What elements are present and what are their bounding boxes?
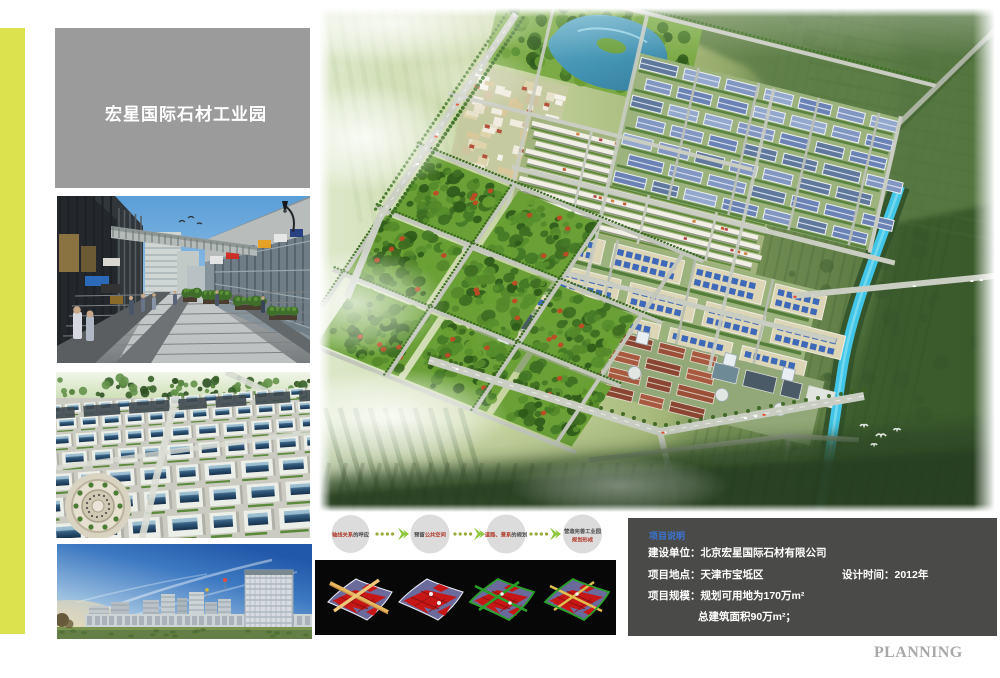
svg-text:规划形成: 规划形成 [572,536,594,544]
svg-text:轴线关系的呼应: 轴线关系的呼应 [332,531,370,539]
svg-text:道路、景系的规划: 道路、景系的规划 [485,531,527,539]
svg-text:预留公共空间: 预留公共空间 [414,531,446,539]
svg-text:营造完善工业园: 营造完善工业园 [564,527,601,535]
